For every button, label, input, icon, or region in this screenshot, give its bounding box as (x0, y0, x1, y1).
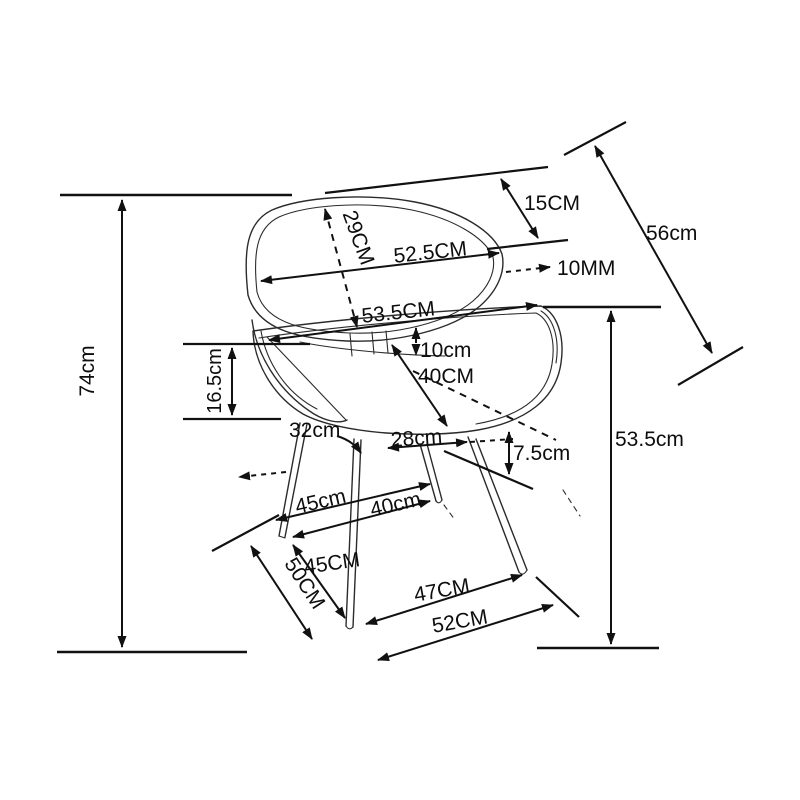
dim-label-47cm: 47CM (412, 574, 471, 606)
dim-label-15cm: 15CM (524, 192, 580, 215)
dim-label-40cm-upper: 40CM (418, 365, 474, 388)
side-support-inner (261, 331, 317, 409)
dim-label-7-5cm: 7.5cm (513, 442, 570, 465)
dimension-10mm: 10MM (506, 257, 615, 280)
dim-label-16-5cm: 16.5cm (204, 348, 226, 414)
leg-front-left (346, 439, 361, 629)
tick-50-top (212, 515, 279, 551)
dimension-32cm: 32cm (289, 419, 361, 453)
dimension-56cm: 56cm (564, 122, 743, 385)
dimension-74cm: 74cm (57, 195, 292, 652)
dim-label-10cm: 10cm (420, 339, 471, 362)
dim-label-52cm: 52CM (430, 605, 489, 637)
pointer-32cm (337, 436, 361, 453)
ref-line-back-top (325, 167, 548, 193)
dim-label-45cm-lower: 45cm (293, 485, 348, 519)
dim-label-74cm: 74cm (76, 345, 99, 396)
side-support-chord (267, 337, 346, 420)
seat-inner-rim (259, 313, 553, 424)
dim-label-29cm: 29CM (338, 208, 379, 269)
diagram-frame: 74cm 16.5cm 15CM 56cm 29CM 52.5CM 10MM (0, 0, 800, 800)
dimension-7-5cm: 7.5cm (444, 432, 570, 489)
dimension-53-5cm-upper: 53.5CM (269, 297, 537, 340)
tick-56-top (564, 122, 626, 155)
tick-56-bottom (678, 347, 743, 385)
tick-52-right (536, 577, 579, 617)
ref-line-15-bottom (487, 240, 568, 249)
dimension-50cm: 50CM (212, 515, 329, 639)
hidden-leg-hint (563, 490, 580, 516)
dimension-16-5cm: 16.5cm (183, 344, 310, 419)
dim-label-52-5cm: 52.5CM (393, 237, 469, 268)
dimension-52-5cm: 52.5CM (261, 237, 499, 281)
dim-label-40cm-lower: 40cm (368, 488, 423, 522)
dim-label-32cm: 32cm (289, 419, 340, 442)
dim-label-56cm: 56cm (646, 222, 697, 245)
dimension-40cm-upper: 40CM (392, 345, 556, 440)
dimension-28cm: 28cm (239, 425, 513, 477)
seat-outer-outline (253, 306, 562, 434)
leg-back-right (420, 444, 455, 520)
dim-label-53-5cm-right: 53.5cm (615, 428, 684, 451)
dim-label-28cm: 28cm (390, 425, 443, 452)
dim-label-53-5cm-upper: 53.5CM (361, 297, 437, 328)
dimension-53-5cm-right: 53.5cm (537, 307, 684, 648)
dim-label-10mm: 10MM (557, 257, 615, 280)
chair-dimension-diagram: 74cm 16.5cm 15CM 56cm 29CM 52.5CM 10MM (0, 0, 800, 800)
dashed-left-arrow (239, 472, 286, 477)
